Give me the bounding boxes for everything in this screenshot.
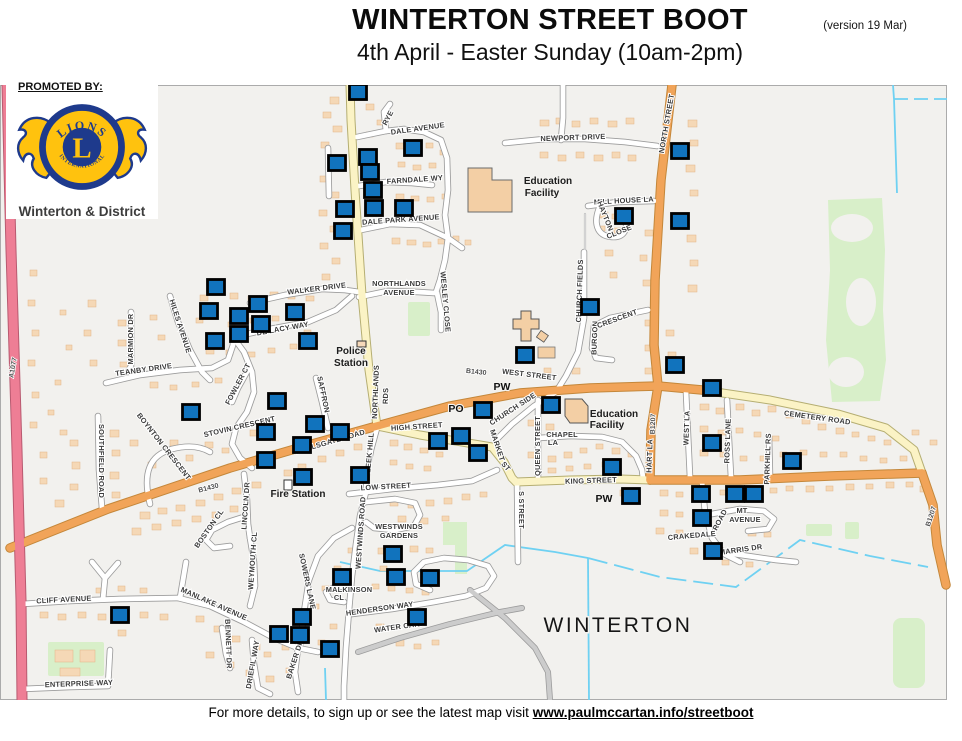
map-label: WESTWINDS [375, 522, 423, 531]
boot-sale-marker [604, 460, 621, 475]
map-label: Fire Station [270, 489, 325, 500]
map-label: BENNETT DR [223, 619, 234, 669]
header: WINTERTON STREET BOOT 4th April - Easter… [150, 2, 950, 66]
boot-sale-marker [352, 468, 369, 483]
map-label: WEST LA [681, 410, 691, 445]
map-label: MT [736, 506, 747, 515]
map-label: AVENUE [383, 288, 414, 297]
boot-sale-marker [623, 489, 640, 504]
boot-sale-marker [705, 544, 722, 559]
boot-sale-marker [784, 454, 801, 469]
boot-sale-marker [672, 144, 689, 159]
boot-sale-marker [295, 470, 312, 485]
boot-sale-marker [409, 610, 426, 625]
boot-sale-marker [292, 628, 309, 643]
promoter-panel: PROMOTED BY: LIONS INTERNATIONAL L Winte… [6, 79, 158, 219]
map-label: AVENUE [729, 515, 760, 524]
map-label: Station [334, 358, 368, 369]
boot-sale-marker [207, 334, 224, 349]
map-label: LA [548, 438, 559, 447]
boot-sale-marker [704, 436, 721, 451]
boot-sale-marker [300, 334, 317, 349]
boot-sale-marker [183, 405, 200, 420]
boot-sale-marker [667, 358, 684, 373]
lions-club-logo: LIONS INTERNATIONAL L [7, 93, 157, 201]
boot-sale-marker [405, 141, 422, 156]
boot-sale-marker [231, 327, 248, 342]
event-date-subtitle: 4th April - Easter Sunday (10am-2pm) [150, 38, 950, 66]
lions-L-monogram: L [72, 133, 91, 165]
boot-sale-marker [694, 511, 711, 526]
boot-sale-marker [543, 398, 560, 413]
map-label: PO [448, 403, 463, 415]
boot-sale-marker [350, 85, 367, 100]
promoted-by-label: PROMOTED BY: [6, 79, 158, 93]
map-label: NORTHLANDS [372, 279, 426, 288]
map-label: Education [524, 176, 572, 187]
footer-text: For more details, to sign up or see the … [209, 705, 533, 720]
street-boot-poster: WINTERTON STREET BOOT 4th April - Easter… [0, 0, 962, 741]
boot-sale-marker [616, 209, 633, 224]
boot-sale-marker [396, 201, 413, 216]
map-label: NORTHLANDS [370, 365, 381, 419]
boot-sale-marker [337, 202, 354, 217]
map-label: GARDENS [380, 531, 418, 540]
boot-sale-marker [253, 317, 270, 332]
boot-sale-marker [322, 642, 339, 657]
boot-sale-marker [470, 446, 487, 461]
map-label: PW [596, 493, 613, 505]
map-label: Facility [525, 188, 560, 199]
version-note: (version 19 Mar) [823, 20, 907, 32]
boot-sale-marker [269, 394, 286, 409]
boot-sale-marker [475, 403, 492, 418]
map-label: ROSS LANE [722, 418, 733, 463]
boot-sale-marker [453, 429, 470, 444]
club-name: Winterton & District [6, 204, 158, 219]
boot-sale-marker [366, 201, 383, 216]
boot-sale-marker [672, 214, 689, 229]
boot-sale-marker [422, 571, 439, 586]
map-label: PW [494, 381, 511, 393]
boot-sale-marker [362, 165, 379, 180]
map-label: QUEEN STREET [533, 416, 542, 476]
boot-sale-marker [334, 570, 351, 585]
boot-sale-marker [385, 547, 402, 562]
boot-sale-marker [746, 487, 763, 502]
map-label: MARMION DR [126, 313, 135, 364]
boot-sale-marker [250, 297, 267, 312]
boot-sale-marker [727, 487, 744, 502]
boot-sale-marker [430, 434, 447, 449]
map-label: SOUTHFIELD ROAD [97, 424, 106, 498]
map-label: Education [590, 409, 638, 420]
boot-sale-marker [287, 305, 304, 320]
map-label: MALKINSON [326, 585, 373, 594]
boot-sale-marker [271, 627, 288, 642]
map-label: KING STREET [565, 475, 617, 486]
boot-sale-marker [704, 381, 721, 396]
map-label: RDS [381, 388, 391, 405]
map-label: Facility [590, 420, 625, 431]
boot-sale-marker [201, 304, 218, 319]
map-label: Police [336, 346, 366, 357]
boot-sale-marker [329, 156, 346, 171]
boot-sale-marker [388, 570, 405, 585]
map-label: HART LA [644, 438, 654, 473]
boot-sale-marker [332, 425, 349, 440]
boot-sale-marker [231, 309, 248, 324]
map-label: PARKHILL RS [762, 433, 773, 484]
boot-sale-marker [294, 438, 311, 453]
boot-sale-marker [258, 453, 275, 468]
boot-sale-marker [112, 608, 129, 623]
map-label: WINTERTON [544, 614, 693, 637]
boot-sale-marker [517, 348, 534, 363]
boot-sale-marker [360, 150, 377, 165]
footer-url: www.paulmccartan.info/streetboot [533, 705, 754, 720]
map-label: B1207 [650, 413, 658, 434]
boot-sale-marker [582, 300, 599, 315]
map-label: CL [334, 593, 345, 602]
footer: For more details, to sign up or see the … [0, 705, 962, 720]
boot-sale-marker [365, 183, 382, 198]
pw-building [538, 347, 555, 358]
map-label: S STREET [517, 491, 526, 529]
boot-sale-marker [693, 487, 710, 502]
boot-sale-marker [335, 224, 352, 239]
boot-sale-marker [294, 610, 311, 625]
boot-sale-marker [258, 425, 275, 440]
education-facility-building-2 [565, 399, 588, 423]
boot-sale-marker [208, 280, 225, 295]
boot-sale-marker [307, 417, 324, 432]
